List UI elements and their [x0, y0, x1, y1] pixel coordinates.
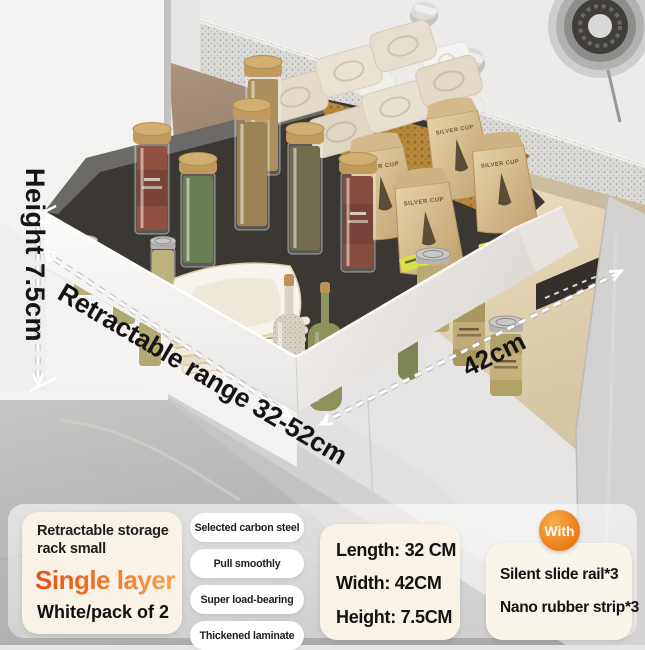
with-badge: With	[539, 510, 580, 551]
feature-pill: Super load-bearing	[190, 585, 304, 614]
included-card: Silent slide rail*3 Nano rubber strip*3	[486, 543, 632, 640]
spice-jar	[233, 99, 271, 231]
dimension-length: Length: 32 CM	[336, 534, 460, 567]
feature-pill: Pull smoothly	[190, 549, 304, 578]
spice-jar	[339, 153, 377, 273]
feature-pill: Thickened laminate	[190, 621, 304, 650]
dimensions-card: Length: 32 CM Width: 42CM Height: 7.5CM	[320, 524, 460, 640]
product-variant: White/pack of 2	[37, 602, 182, 623]
product-highlight: Single layer	[35, 565, 182, 596]
feature-pill: Selected carbon steel	[190, 513, 304, 542]
included-item: Silent slide rail*3	[500, 559, 632, 592]
spice-jar	[179, 153, 217, 268]
included-item: Nano rubber strip*3	[500, 592, 632, 625]
spice-jar	[133, 123, 171, 235]
height-annotation: Height 7.5cm	[20, 168, 50, 342]
spice-jar	[286, 123, 324, 255]
dimension-width: Width: 42CM	[336, 567, 460, 600]
dimension-height: Height: 7.5CM	[336, 601, 460, 634]
product-title: Retractable storage rack small	[37, 523, 182, 558]
product-card: Retractable storage rack small Single la…	[22, 512, 182, 634]
